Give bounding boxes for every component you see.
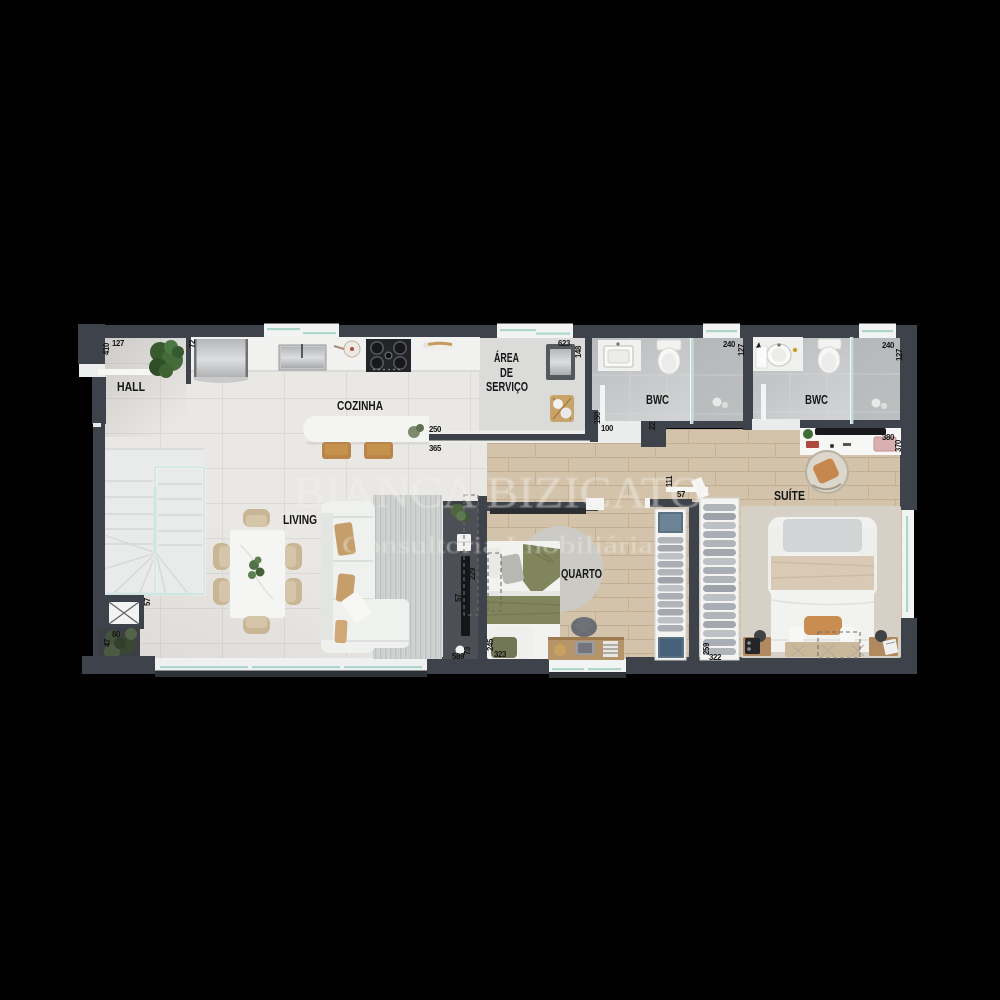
svg-text:57: 57	[143, 598, 152, 606]
svg-text:COZINHA: COZINHA	[337, 399, 383, 413]
svg-text:BWC: BWC	[805, 393, 828, 407]
svg-text:240: 240	[882, 341, 895, 350]
svg-text:DE: DE	[500, 366, 513, 380]
svg-text:127: 127	[895, 349, 904, 361]
svg-text:QUARTO: QUARTO	[561, 567, 602, 581]
svg-text:127: 127	[112, 339, 124, 348]
svg-text:80: 80	[112, 630, 121, 639]
svg-text:127: 127	[737, 344, 746, 356]
svg-text:47: 47	[103, 639, 112, 647]
svg-text:410: 410	[102, 342, 111, 355]
svg-text:73: 73	[463, 646, 472, 655]
svg-text:HALL: HALL	[117, 380, 145, 394]
svg-text:100: 100	[601, 424, 614, 433]
svg-text:370: 370	[894, 439, 903, 452]
svg-text:57: 57	[454, 594, 463, 602]
svg-text:322: 322	[709, 653, 722, 662]
svg-text:SUÍTE: SUÍTE	[774, 488, 805, 503]
svg-text:240: 240	[723, 340, 736, 349]
svg-text:BWC: BWC	[646, 393, 669, 407]
svg-text:323: 323	[494, 650, 507, 659]
svg-text:148: 148	[574, 345, 583, 358]
svg-text:229: 229	[468, 567, 477, 580]
svg-text:SERVIÇO: SERVIÇO	[486, 380, 528, 394]
svg-text:ÁREA: ÁREA	[494, 350, 519, 365]
svg-text:22: 22	[648, 421, 657, 430]
svg-text:250: 250	[429, 425, 442, 434]
svg-text:365: 365	[429, 444, 442, 453]
svg-text:72: 72	[188, 339, 197, 348]
svg-text:Consultoria Imobiliária: Consultoria Imobiliária	[342, 533, 653, 559]
svg-text:623: 623	[558, 339, 571, 348]
svg-text:BIANCA BIZICATO: BIANCA BIZICATO	[293, 468, 704, 517]
svg-text:589: 589	[452, 652, 465, 661]
svg-text:150: 150	[593, 411, 602, 424]
